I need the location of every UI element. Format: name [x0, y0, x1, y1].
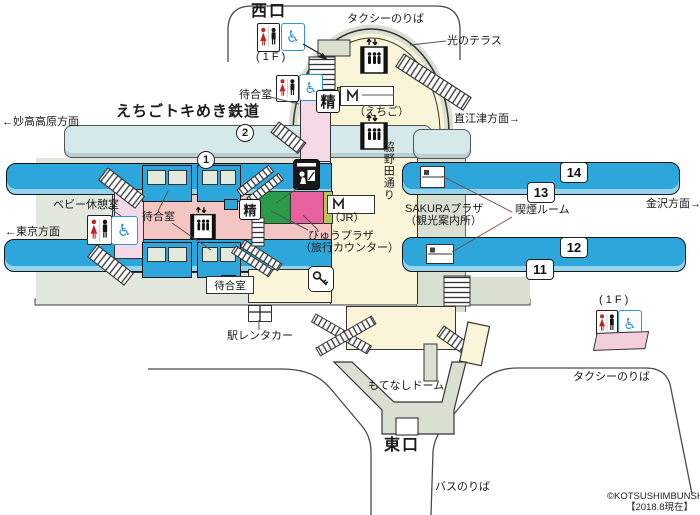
- taxi-stand-west-label: タクシーのりば: [347, 13, 424, 26]
- motenashi-dome-footprint: [334, 362, 466, 434]
- dir-kanazawa-label: 金沢方面→: [646, 198, 700, 211]
- floor-1f-east-label: ( 1 F ): [599, 294, 628, 307]
- rentacar-label: 駅レンタカー: [227, 330, 293, 343]
- dome-stair-landing: [318, 40, 350, 56]
- sakura-plaza-label-2: （観光案内所）: [405, 215, 482, 228]
- pink-room-block-east: [593, 331, 649, 351]
- smoking-room-box: [420, 166, 445, 188]
- floor-1f-west-label: ( 1 F ): [256, 51, 285, 64]
- platform-11-badge: 11: [526, 259, 554, 280]
- platform-13-badge: 13: [527, 182, 555, 203]
- southeast-walkway: [464, 277, 530, 303]
- waiting-room-mid-label: 待合室: [142, 211, 175, 224]
- dir-myoko-label: ←妙高高原方面: [2, 116, 79, 129]
- ticket-machine-echigo: [340, 86, 394, 106]
- view-plaza-label-2: （旅行カウンター）: [300, 242, 399, 255]
- smoking-room-label: 喫煙ルーム: [515, 204, 570, 217]
- waiting-room-south-label: 待合室: [206, 276, 254, 294]
- platform-2-badge: 2: [236, 124, 254, 142]
- dir-naoetsu-label: 直江津方面→: [454, 113, 520, 126]
- elevator-icon: [360, 38, 388, 74]
- echigo-machine-label: （えちご）: [354, 106, 409, 119]
- midori-ticket-office-block: [257, 191, 292, 224]
- view-plaza-block: [290, 191, 325, 224]
- restroom-icon: [276, 75, 299, 102]
- east-stair-landing: [460, 322, 490, 366]
- fare-adjustment-top: 精: [316, 90, 340, 113]
- fare-adjustment-mid: 精: [239, 199, 261, 220]
- rentacar-counter-symbol: [248, 305, 272, 322]
- date-label: 【2018.8現在】: [626, 502, 693, 513]
- jr-machine-label: （JR）: [329, 212, 364, 225]
- etr-line-label: えちごトキめき鉄道: [116, 103, 260, 121]
- station-map: ♿ ♿ ♿ ♿: [0, 0, 700, 515]
- restroom-icon: [87, 215, 112, 245]
- wheelchair-icon: ♿: [111, 216, 138, 245]
- dir-tokyo-label: ←東京方面: [5, 226, 60, 239]
- platform-waiting-room: [142, 242, 192, 278]
- key-icon: [308, 266, 334, 292]
- platform-waiting-room: [197, 165, 241, 202]
- platform-1-badge: 1: [197, 151, 215, 169]
- waiting-room-top-label: 待合室: [239, 89, 272, 102]
- hikari-terrace-label: 光のテラス: [447, 35, 502, 48]
- west-exit-label: 西口: [251, 2, 287, 21]
- etr-platform-east: [413, 129, 471, 159]
- copyright-label: ©KOTSUSHIMBUNSHA: [607, 491, 700, 502]
- baby-room-label: ベビー休憩室: [53, 199, 119, 212]
- east-entrance-lobby: [346, 306, 456, 350]
- east-road-left: [148, 369, 371, 515]
- elevator-icon: [190, 206, 216, 240]
- platform-14-badge: 14: [560, 162, 588, 183]
- ticket-office-icon: [293, 159, 320, 190]
- platform-12-badge: 12: [560, 237, 588, 258]
- platform-structure-stub: [224, 199, 238, 210]
- wakinoda-street-label: 脇野田通り: [381, 141, 394, 201]
- wheelchair-icon: ♿: [281, 23, 305, 51]
- motenashi-dome-label: もてなしドーム: [368, 380, 444, 393]
- motenashi-dome-notch: [396, 418, 418, 435]
- east-exit-label: 東口: [384, 436, 420, 455]
- restroom-icon: [257, 23, 280, 52]
- platform-waiting-room: [197, 242, 241, 278]
- bus-stop-label: バスのりば: [435, 481, 490, 494]
- smoking-room-box: [426, 244, 454, 264]
- taxi-stand-east-label: タクシーのりば: [573, 371, 650, 384]
- platform-waiting-room: [142, 165, 192, 202]
